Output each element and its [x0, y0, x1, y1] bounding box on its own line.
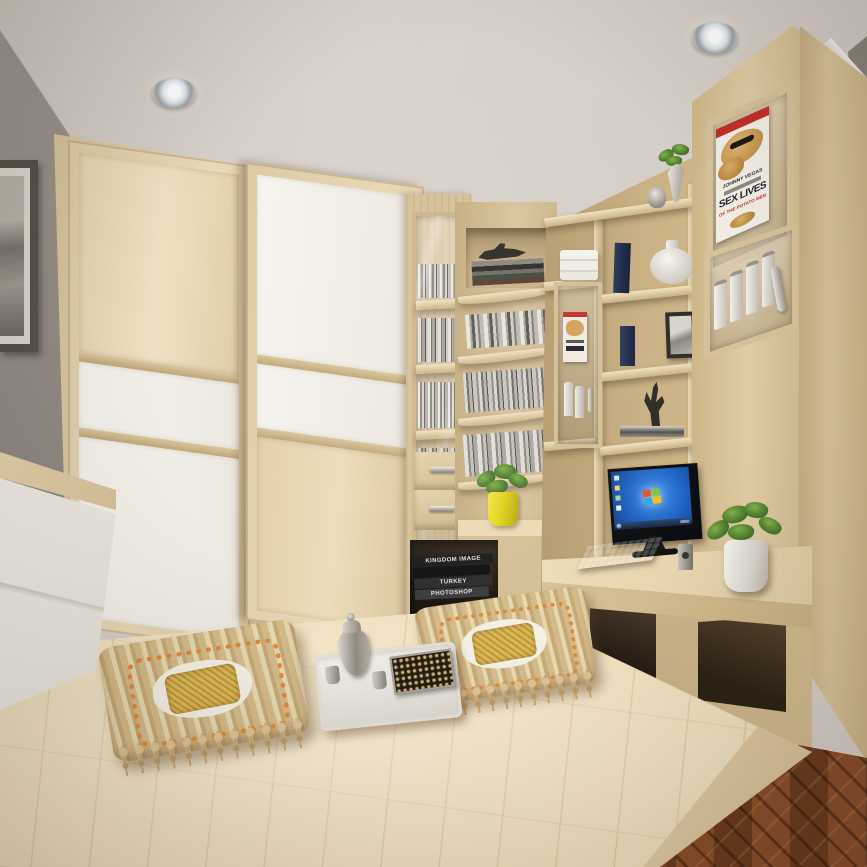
canister [564, 382, 573, 416]
magazine-art [566, 320, 584, 336]
headboard-groove [0, 582, 113, 617]
cone-vase [666, 164, 686, 202]
start-orb-icon [616, 523, 621, 528]
desktop-icon [614, 475, 619, 480]
book-spine: KINGDOM IMAGE TURKEY PHOTOSHOP [413, 552, 495, 601]
teacup [371, 671, 387, 690]
potted-plant [706, 500, 782, 598]
teacup [325, 665, 341, 684]
serving-tray [311, 614, 471, 737]
plant-pot [488, 492, 518, 526]
wardrobe-sliding-door-right [246, 162, 424, 645]
door-panel-white [257, 175, 413, 377]
taskbar [614, 517, 692, 529]
magazine [563, 312, 587, 362]
monitor-screen [607, 463, 702, 545]
drawer-handle [429, 506, 455, 511]
white-vase [650, 240, 694, 284]
bookshelf-cubby-top [466, 228, 552, 288]
books-row [465, 309, 551, 349]
vase-body [650, 248, 694, 284]
dvd-player [620, 426, 684, 437]
recessed-light-icon [692, 22, 738, 54]
monitor-wallpaper [611, 467, 693, 530]
drawer-handle [430, 467, 456, 472]
artwork-print [0, 176, 24, 336]
desktop-icon [616, 505, 621, 510]
framed-artwork [0, 160, 38, 352]
canister [575, 386, 584, 418]
desktop-icon [615, 485, 620, 490]
plant-pot [724, 540, 768, 592]
yellow-pot-plant [472, 462, 532, 528]
books-row [463, 367, 552, 413]
speaker-cone [682, 552, 689, 559]
silver-ornament [648, 186, 666, 208]
canister [714, 278, 727, 330]
speaker-box [678, 544, 693, 570]
narrow-glass-door [554, 282, 602, 448]
cabinet-handle [588, 388, 593, 412]
desktop-icon [615, 495, 620, 500]
magazine-title-bar [566, 346, 584, 351]
movie-poster: JOHNNY VEGAS SEX LIVES OF THE POTATO MEN [716, 106, 769, 244]
stacked-books [471, 258, 544, 286]
windows-logo-icon [642, 488, 661, 506]
white-box-stack [560, 250, 598, 280]
tray-icons [680, 520, 689, 524]
door-panel-wood [79, 153, 239, 375]
door-panel-wood [257, 437, 413, 633]
photo [669, 316, 692, 355]
canister [746, 259, 759, 315]
floor-cushion [97, 617, 323, 803]
canister [730, 269, 743, 323]
magazine-banner [563, 312, 587, 317]
bedroom-scene: KINGDOM IMAGE TURKEY PHOTOSHOP [0, 0, 867, 867]
blue-book [613, 243, 631, 294]
blue-book [620, 326, 635, 366]
glass-reflection [416, 216, 460, 590]
teapot-lid [342, 619, 361, 634]
magazine-text-bar [566, 340, 584, 343]
recessed-light-icon [152, 78, 196, 108]
